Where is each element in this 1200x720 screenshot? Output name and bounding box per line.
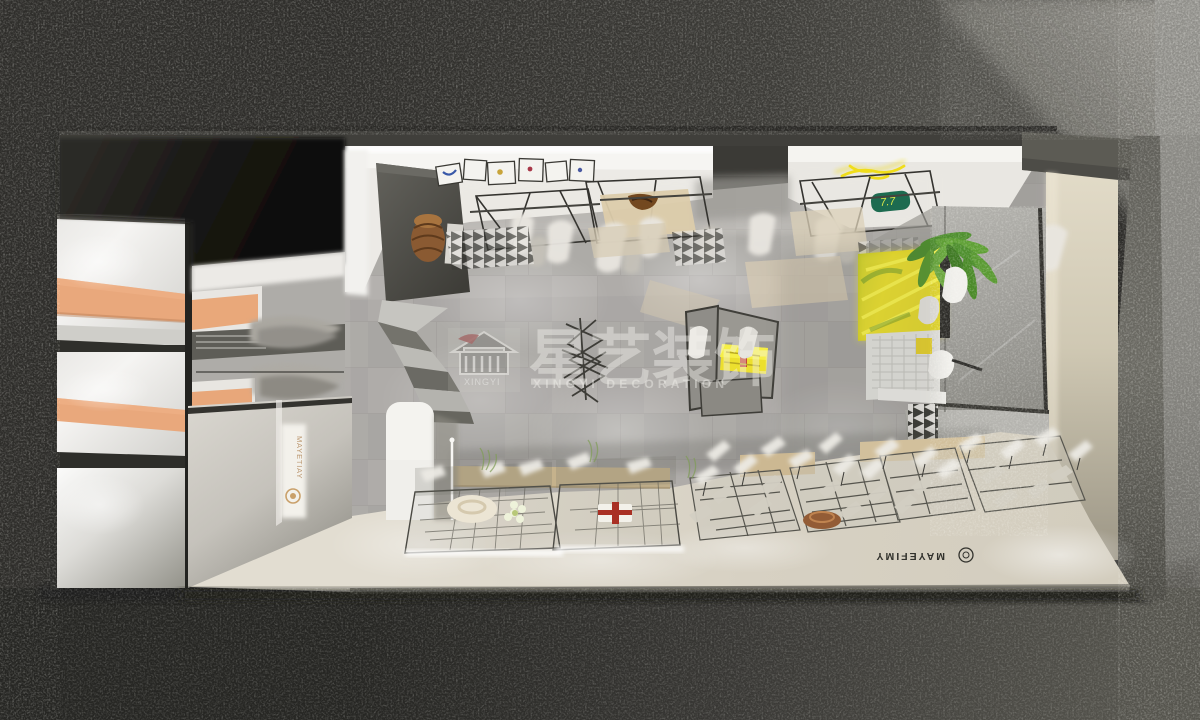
svg-text:MAYEFIMY: MAYEFIMY [875, 550, 945, 562]
svg-text:MAYETIAY: MAYETIAY [295, 436, 304, 479]
svg-text:XINGYI DECORATION: XINGYI DECORATION [533, 377, 728, 391]
svg-text:XINGYI: XINGYI [464, 377, 501, 387]
